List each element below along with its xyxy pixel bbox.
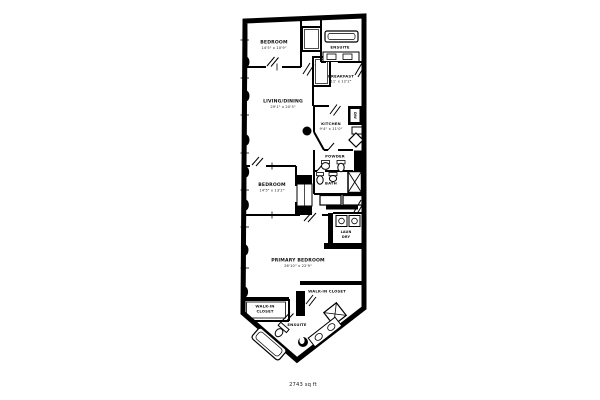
label-breakfast: BREAKFAST (328, 74, 354, 79)
dims-kitchen: 9'4" x 11'0" (320, 127, 343, 131)
label-walkin-left-2: CLOSET (256, 309, 273, 314)
sink (327, 54, 336, 60)
bedroom-closet (297, 184, 312, 206)
label-ensuite-top: ENSUITE (330, 45, 349, 50)
label-walkin-right: WALK-IN CLOSET (308, 289, 346, 294)
label-primary-bedroom: PRIMARY BEDROOM (271, 258, 325, 264)
shaft-x-box (348, 172, 362, 193)
floorplan-page: DW (0, 0, 600, 400)
interior-walls (243, 18, 364, 322)
toilet (317, 173, 324, 176)
kitchen-island (349, 133, 363, 147)
dims-bedroom-mid: 14'5" x 13'2" (259, 189, 285, 193)
top-closet (302, 27, 321, 51)
kitchen-fixtures: DW (348, 106, 363, 147)
label-powder: POWDER (325, 154, 345, 159)
label-bedroom-top: BEDROOM (260, 40, 288, 46)
dims-bedroom-top: 14'5" x 10'9" (261, 46, 287, 50)
label-bath: BATH (325, 181, 337, 186)
counter (352, 127, 362, 134)
label-laundry-2: DRY (342, 235, 351, 239)
label-kitchen: KITCHEN (321, 121, 341, 126)
label-bedroom-mid: BEDROOM (258, 182, 286, 188)
dims-breakfast: 11' x 12'2" (330, 80, 351, 84)
floorplan-drawing: DW (0, 0, 600, 400)
dims-primary-bedroom: 26'10" x 22'9" (284, 264, 312, 268)
label-ensuite-bottom: ENSUITE (287, 322, 306, 327)
hall-closets (320, 196, 362, 206)
bedroom-closet-cap-bottom (297, 206, 312, 215)
label-living-dining: LIVING/DINING (263, 99, 303, 105)
total-area-note: 2743 sq ft (289, 382, 317, 388)
label-laundry-1: LAUN (341, 230, 352, 234)
dishwasher-label: DW (353, 112, 357, 119)
bedroom-closet-cap-top (297, 175, 312, 184)
sink (343, 54, 352, 60)
living-room-column (303, 127, 312, 136)
dims-living-dining: 29'1" x 20'3" (270, 105, 296, 109)
laundry-fixtures (336, 216, 360, 227)
dimension-ticks (272, 64, 277, 219)
